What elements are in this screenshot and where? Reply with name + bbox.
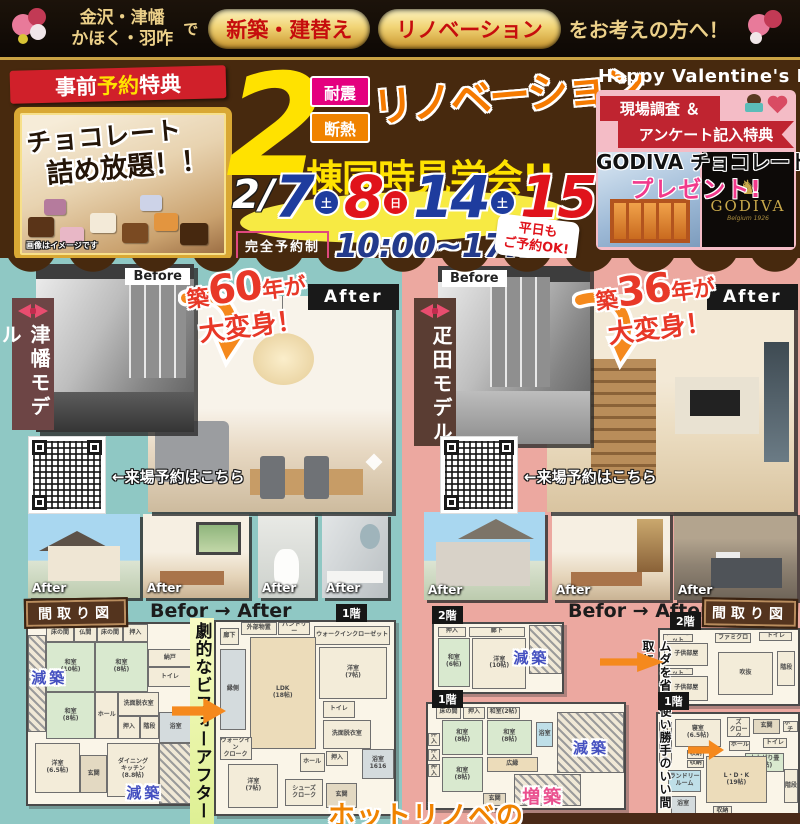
date-day: 7: [274, 168, 311, 226]
survey-ribbon-line1: 現場調査 ＆: [600, 96, 720, 121]
room-label: 廊下: [469, 627, 525, 637]
chair-shape: [260, 456, 284, 499]
room-label: 階段: [140, 716, 160, 739]
room-label: トイレ: [323, 701, 355, 718]
floor-badge-1f: 1階: [432, 690, 463, 708]
floorplan-after-1f: クローゼット寝室 (6.5帖)シューズ クローク玄関ポーチホールトイレ収納収納小…: [656, 712, 800, 822]
scalloped-edge: [0, 258, 800, 273]
ribbon-bow-icon: [18, 304, 48, 318]
room-label: ホール: [95, 692, 118, 739]
room-label: 洗面脱衣室: [118, 692, 159, 715]
room-label: パントリー: [278, 622, 310, 635]
room-label: 押入: [438, 627, 466, 637]
after-label: After: [308, 284, 399, 310]
present-text: プレゼント!: [596, 170, 796, 204]
floor-badge-2f: 2階: [670, 612, 701, 630]
before-photo: Before: [36, 264, 194, 432]
zochiku-label: 増築: [522, 783, 564, 809]
date-day: 14: [413, 168, 488, 226]
room-label: 和室 (8帖): [442, 757, 483, 792]
room-label: L・D・K (19帖): [706, 756, 768, 803]
house-shape: [436, 542, 530, 586]
date-weekday: 土: [313, 189, 340, 216]
valentine-title: Happy Valentine's Day: [598, 66, 796, 87]
qr-caption: ←来場予約はこちら: [112, 466, 245, 487]
room-label: 押入: [428, 764, 440, 776]
room-label: トイレ: [148, 667, 192, 687]
pill-renovation: リノベーション: [378, 9, 561, 49]
model-name-banner: 津幡モデル: [12, 298, 54, 430]
ribbon-bow-icon: [420, 304, 450, 318]
renovation-title: リノベーション: [370, 54, 604, 134]
after-photo-dining: After: [143, 514, 249, 598]
flower-icon: [10, 8, 54, 48]
badge-dannetsu: 断熱: [310, 112, 370, 143]
qr-code: [28, 436, 106, 514]
image-disclaimer: 画像はイメージです: [26, 240, 98, 251]
after-photo-bathroom: After: [322, 514, 388, 598]
genchiku-label: 減築: [31, 667, 67, 688]
event-header-band: 事前予約特典 チョコレート 詰め放題！！ 画像はイメージです 2 耐震 断熱 リ…: [0, 60, 800, 258]
room-label: ウォークイン クローク: [220, 737, 252, 760]
hikita-model-section: 疋田モデル Before After 築36年が 大変身！ ←来場予約はこちら: [402, 258, 800, 824]
floorplan-before-2f: 押入廊下和室 (6帖)洋室 (10帖)減築: [432, 622, 564, 694]
date-weekday: 日: [382, 189, 409, 216]
room-label: 和室(2帖): [487, 707, 520, 718]
room-label: 洗面脱衣室: [323, 720, 371, 749]
floorplan-after: 廊下外部物置パントリーウォークインクローゼット洋室 (7帖)LDK (18帖)縁…: [214, 620, 396, 816]
room-label: ファミクロ: [715, 633, 751, 643]
room-label: 和室 (8帖): [95, 642, 147, 692]
room-label: LDK (18帖): [250, 637, 316, 748]
badge-taishin: 耐震: [310, 76, 370, 107]
room-label: ホール: [300, 753, 325, 772]
chocolate-photo-frame: チョコレート 詰め放題！！ 画像はイメージです: [14, 107, 232, 261]
room-label: 階段: [777, 651, 795, 687]
room-label: 納戸: [148, 649, 192, 667]
room-label: 浴室: [536, 722, 554, 747]
room-label: トイレ: [759, 632, 792, 641]
room-label: 和室 (8帖): [442, 720, 483, 755]
qr-code: [440, 436, 518, 514]
house-shape: [48, 546, 120, 581]
qr-caption: ←来場予約はこちら: [524, 466, 657, 487]
room-label: 洋室 (7帖): [228, 764, 278, 808]
chair-shape: [304, 456, 328, 499]
room-label: 寝室 (6.5帖): [675, 719, 721, 747]
center-copy-strip: 劇的なビフォーアフター: [190, 618, 214, 824]
genchiku-label: 減築: [513, 647, 549, 668]
floorplan-before: 縁側床の間仏間床の間押入和室 (10帖)和室 (8帖)納戸トイレ和室 (8帖)ホ…: [26, 622, 194, 806]
event-dates: 2/ 7 土 8 日 14 土 15 日: [232, 168, 627, 226]
reservation-required-badge: 完全予約制: [236, 231, 329, 260]
stairs-shape: [591, 359, 655, 479]
chocolate-icon: [744, 94, 764, 112]
room-label: 和室 (8帖): [46, 692, 95, 739]
roof-shape: [458, 519, 534, 539]
after-photo-toilet: After: [258, 514, 315, 598]
valentine-panel: 現場調査 ＆ アンケート記入特典 GODIVA チョコレート プレゼント! ♞ …: [596, 90, 796, 250]
flyer-page: 金沢・津幡 かほく・羽咋 で 新築・建替え リノベーション をお考えの方へ！ 事…: [0, 0, 800, 824]
floorplan-plaque: 間取り図: [24, 597, 129, 629]
after-label: After: [707, 284, 798, 310]
model-name-banner: 疋田モデル: [414, 298, 456, 446]
room-label: 押入: [463, 707, 485, 718]
room-label: 玄関: [753, 719, 780, 734]
room-label: 押入: [118, 716, 139, 739]
date-day: 8: [344, 168, 381, 226]
room-label: 洋室 (7帖): [319, 647, 387, 699]
after-photo-bedroom: After: [674, 512, 797, 600]
room-label: 玄関: [80, 755, 106, 793]
genchiku-label: 減築: [573, 737, 609, 758]
mirror-shape: [360, 524, 380, 549]
bed-shape: [711, 558, 782, 588]
floor-badge-1f: 1階: [658, 692, 689, 710]
date-prefix: 2/: [232, 172, 274, 218]
room-label: [159, 743, 192, 804]
flower-icon: [746, 8, 790, 48]
footer-corner-shape: [515, 813, 800, 824]
floor-badge-2f: 2階: [432, 606, 463, 624]
room-label: 浴室: [671, 796, 696, 814]
room-label: 床の間: [436, 707, 461, 718]
survey-ribbon-line2: アンケート記入特典: [618, 121, 794, 148]
tv-shape: [690, 390, 739, 416]
room-label: シューズ クローク: [285, 779, 322, 806]
room-label: 浴室: [159, 712, 192, 743]
floor-badge-1f: 1階: [336, 604, 367, 622]
room-label: 洋室 (6.5帖): [35, 743, 81, 793]
stair-post-shape: [637, 519, 663, 572]
room-label: 浴室 1616: [362, 749, 394, 780]
after-photo-dining: After: [552, 512, 670, 600]
room-label: 縁側: [220, 649, 247, 730]
before-photo: Before: [438, 266, 590, 444]
after-photo-exterior: After: [28, 514, 140, 598]
particle-de: で: [183, 18, 198, 39]
room-label: 和室 (6帖): [438, 638, 470, 687]
region-text: 金沢・津幡 かほく・羽咋: [71, 8, 173, 49]
room-label: ポーチ: [783, 721, 798, 732]
room-label: 和室 (8帖): [487, 720, 532, 755]
tail-text: をお考えの方へ！: [569, 14, 729, 43]
room-label: 押入: [428, 749, 440, 761]
genchiku-label: 減築: [126, 782, 162, 803]
heart-icon: [770, 98, 786, 114]
pill-shinchiku: 新築・建替え: [208, 9, 370, 49]
room-label: トイレ: [763, 738, 787, 748]
room-label: 廊下: [220, 628, 240, 645]
room-label: ホール: [729, 741, 750, 752]
floorplan-plaque: 間取り図: [702, 597, 799, 629]
window-shape: [196, 522, 240, 555]
window-shape: [764, 342, 789, 462]
room-label: シューズ クローク: [727, 717, 751, 737]
after-photo-exterior: After: [424, 512, 545, 600]
presale-ribbon: 事前予約特典: [10, 65, 227, 104]
room-label: ウォークインクローゼット: [314, 626, 391, 645]
tsubata-model-section: 津幡モデル Before After 築60年が 大変身！ ←来: [0, 258, 402, 824]
hot-renove-title: ホットリノベの: [328, 794, 524, 824]
room-label: 押入: [326, 751, 347, 766]
room-label: 外部物置: [241, 622, 277, 635]
room-label: 収納: [687, 760, 704, 768]
date-weekday: 土: [489, 189, 516, 216]
top-banner: 金沢・津幡 かほく・羽咋 で 新築・建替え リノベーション をお考えの方へ！: [0, 0, 800, 60]
room-label: 吹抜: [718, 652, 773, 695]
room-label: 階段: [784, 769, 798, 803]
room-label: 押入: [428, 733, 440, 745]
befor-after-text: Befor → After: [150, 600, 292, 622]
room-label: 広縁: [487, 757, 538, 772]
